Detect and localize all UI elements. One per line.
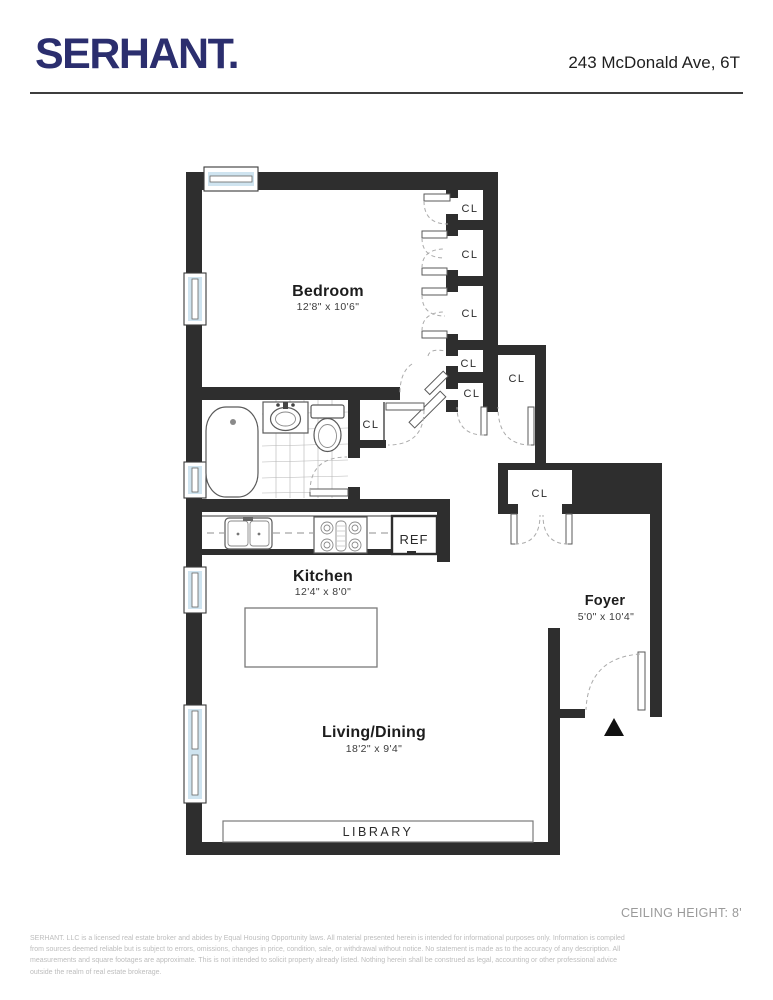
bedroom-dims: 12'8" x 10'6": [297, 301, 360, 313]
window-bedroom-left: [184, 273, 206, 325]
foyer-label: Foyer: [585, 593, 626, 609]
disclaimer-line-2: from sources deemed reliable but is subj…: [30, 944, 625, 955]
closet-label-5: CL: [463, 388, 480, 400]
bedroom-label: Bedroom: [292, 283, 364, 300]
ref-label: REF: [400, 532, 429, 547]
kitchen-island: [245, 608, 377, 667]
closet-label-4: CL: [460, 358, 477, 370]
bathtub: [206, 407, 258, 497]
closet-label-2: CL: [461, 249, 478, 261]
closet-label-foyer: CL: [531, 488, 548, 500]
ceiling-height-note: CEILING HEIGHT: 8': [621, 906, 742, 920]
living-dims: 18'2" x 9'4": [346, 743, 403, 755]
floorplan-page: SERHANT. 243 McDonald Ave, 6T: [0, 0, 773, 1000]
closet-label-bath: CL: [362, 419, 379, 431]
toilet: [311, 405, 344, 452]
foyer-dims: 5'0" x 10'4": [578, 611, 635, 623]
library-shelf: LIBRARY: [223, 821, 533, 842]
closet-label-6: CL: [508, 373, 525, 385]
disclaimer-line-3: measurements and square footages are app…: [30, 955, 625, 966]
bathroom-sink: [263, 402, 308, 433]
window-living-left: [184, 705, 206, 803]
kitchen-dims: 12'4" x 8'0": [295, 586, 352, 598]
disclaimer-line-1: SERHANT. LLC is a licensed real estate b…: [30, 933, 625, 944]
window-bedroom-top: [204, 167, 258, 191]
stove: [314, 517, 367, 553]
living-label: Living/Dining: [322, 724, 426, 741]
legal-disclaimer: SERHANT. LLC is a licensed real estate b…: [30, 933, 625, 978]
closet-label-1: CL: [461, 203, 478, 215]
library-label: LIBRARY: [343, 825, 414, 839]
closet-label-3: CL: [461, 308, 478, 320]
disclaimer-line-4: outside the realm of real estate brokera…: [30, 967, 625, 978]
window-kitchen-left: [184, 567, 206, 613]
refrigerator: REF: [392, 516, 437, 555]
kitchen-sink: [225, 517, 272, 549]
entry-arrow: [604, 718, 624, 736]
kitchen-label: Kitchen: [293, 568, 353, 585]
window-bathroom-left: [184, 462, 206, 498]
floorplan-drawing: REF LIBRARY: [0, 0, 773, 1000]
